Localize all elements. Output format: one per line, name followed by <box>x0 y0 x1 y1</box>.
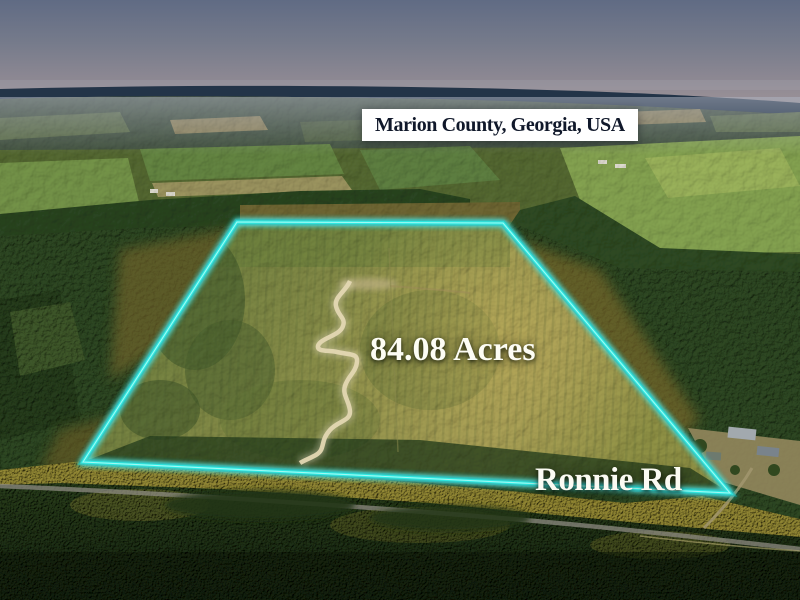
acreage-label: 84.08 Acres <box>370 333 536 367</box>
aerial-property-photo: Marion County, Georgia, USA 84.08 Acres … <box>0 0 800 600</box>
building-roof <box>706 452 722 461</box>
aerial-photo-background <box>0 0 800 600</box>
road-name-label: Ronnie Rd <box>535 464 682 497</box>
location-label: Marion County, Georgia, USA <box>362 109 638 141</box>
